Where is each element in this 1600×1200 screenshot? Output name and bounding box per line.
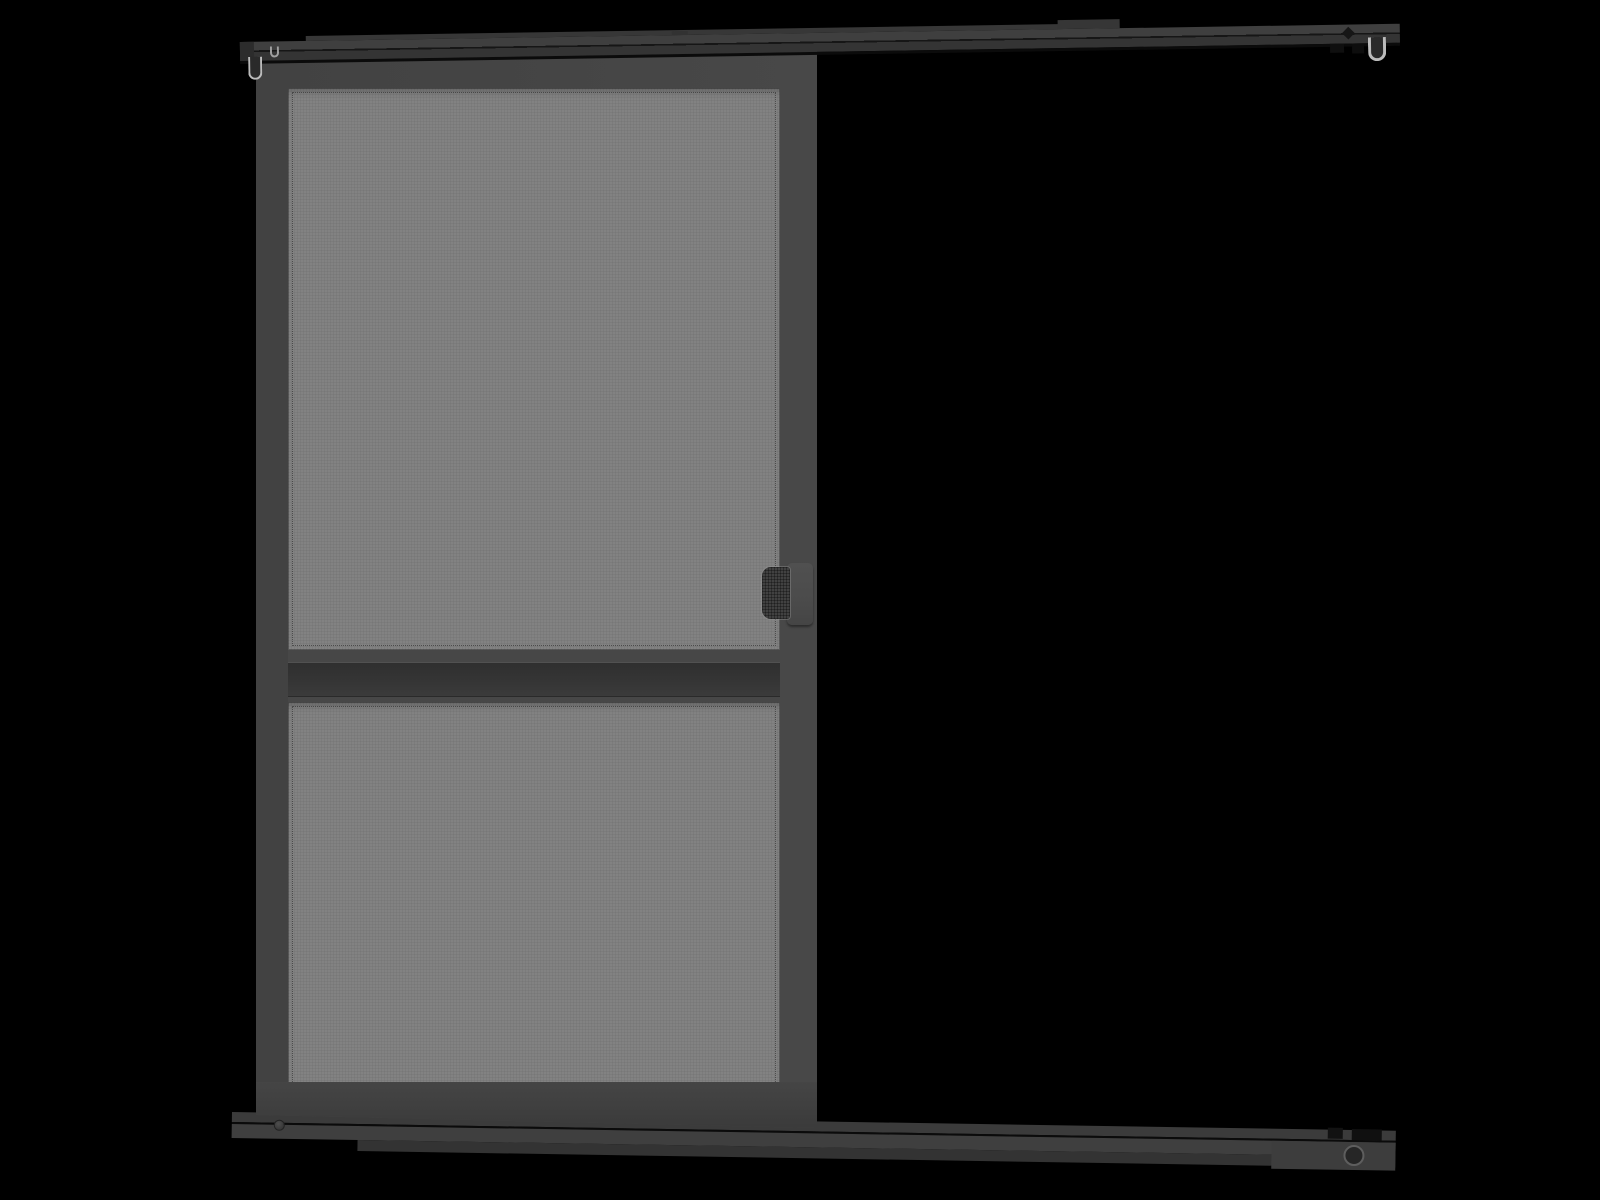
- bottom-track-endblock: [1271, 1141, 1395, 1171]
- bottom-track-tab: [1328, 1128, 1343, 1139]
- track-tab: [1352, 43, 1364, 53]
- track-mounting-hole-icon: [1342, 27, 1355, 40]
- door-handle-grip: [762, 567, 790, 619]
- top-track-bracket: [672, 31, 688, 35]
- bottom-track-tab: [1352, 1129, 1382, 1140]
- mesh-panel-lower: [288, 702, 780, 1090]
- top-track: [240, 24, 1400, 64]
- middle-rail: [288, 650, 780, 702]
- top-track-notch: [1058, 19, 1120, 29]
- product-render-stage: [0, 0, 1600, 1200]
- middle-rail-recess: [288, 662, 780, 697]
- track-tab: [1330, 44, 1344, 53]
- handle-plate: [787, 563, 813, 625]
- top-track-clip-icon: [270, 46, 279, 57]
- mesh-panel-upper: [288, 88, 780, 650]
- screen-door-panel: [256, 50, 817, 1130]
- left-hook-icon: [248, 57, 262, 80]
- right-hook-icon: [1368, 37, 1386, 61]
